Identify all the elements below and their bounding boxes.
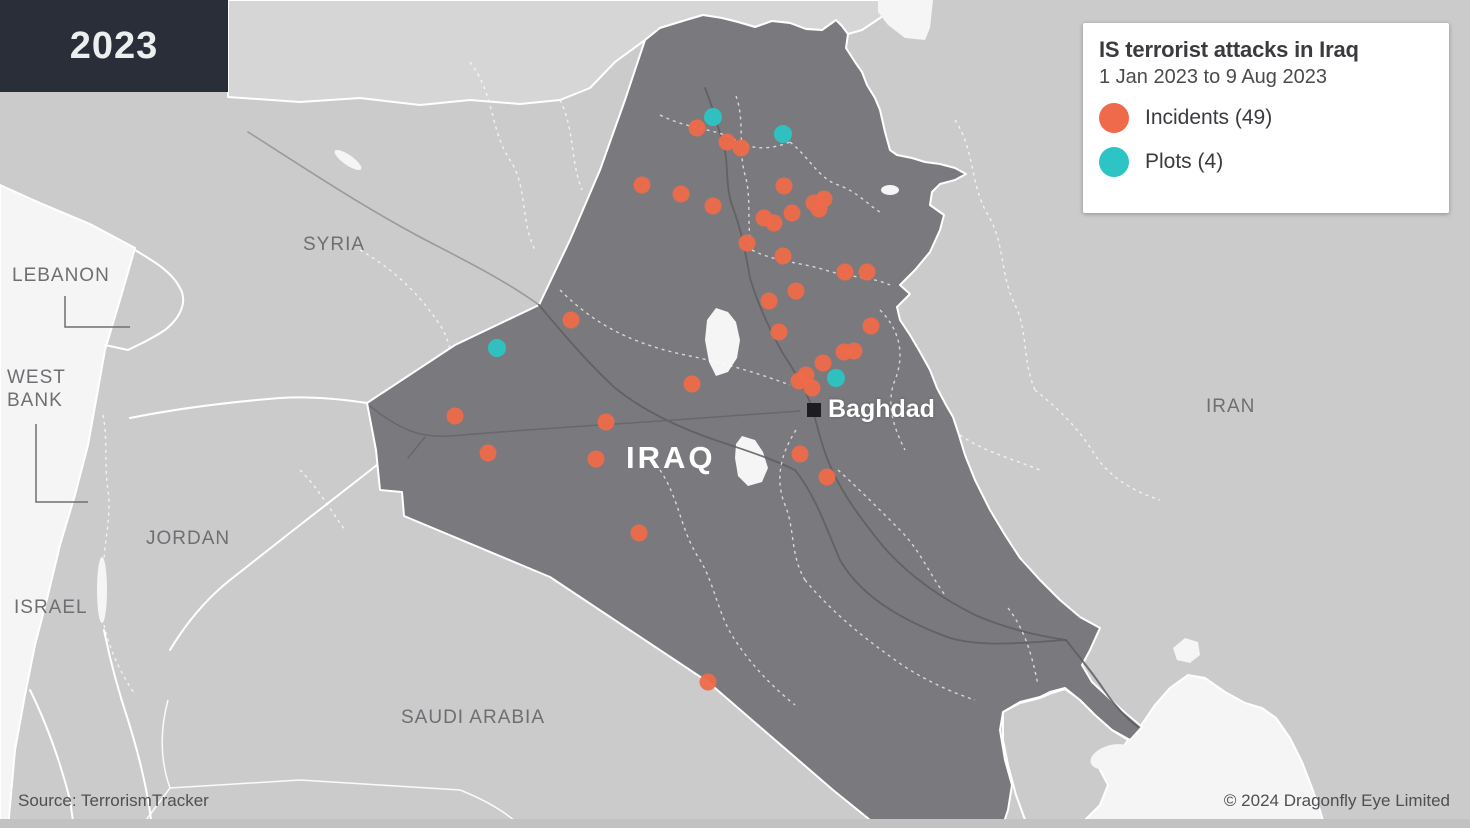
plots-label: Plots (4) bbox=[1145, 150, 1223, 174]
plot-dot bbox=[704, 108, 722, 126]
incident-dot bbox=[846, 343, 863, 360]
label-lebanon: LEBANON bbox=[12, 264, 110, 287]
incident-dot bbox=[859, 264, 876, 281]
label-saudi-arabia: SAUDI ARABIA bbox=[401, 706, 545, 729]
label-iran: IRAN bbox=[1206, 395, 1255, 418]
incident-dot bbox=[733, 140, 750, 157]
incident-dot bbox=[771, 324, 788, 341]
incidents-label: Incidents (49) bbox=[1145, 106, 1272, 130]
label-west-bank: WEST BANK bbox=[7, 366, 66, 412]
label-jordan: JORDAN bbox=[146, 527, 230, 550]
incident-dot bbox=[447, 408, 464, 425]
incident-dot bbox=[837, 264, 854, 281]
label-syria: SYRIA bbox=[303, 233, 365, 256]
incident-dot bbox=[791, 373, 808, 390]
baghdad-marker bbox=[807, 403, 821, 417]
incident-dot bbox=[631, 525, 648, 542]
plot-dot bbox=[827, 369, 845, 387]
incident-dot bbox=[811, 201, 828, 218]
label-israel: ISRAEL bbox=[14, 596, 88, 619]
incident-dot bbox=[598, 414, 615, 431]
legend-card: IS terrorist attacks in Iraq 1 Jan 2023 … bbox=[1083, 23, 1449, 213]
incident-dot bbox=[705, 198, 722, 215]
incident-dot bbox=[480, 445, 497, 462]
incident-dot bbox=[673, 186, 690, 203]
year-badge: 2023 bbox=[0, 0, 228, 92]
source-note: Source: TerrorismTracker bbox=[18, 791, 209, 811]
incident-dot bbox=[761, 293, 778, 310]
incident-dot bbox=[775, 248, 792, 265]
plots-swatch bbox=[1099, 147, 1129, 177]
legend-item-plots: Plots (4) bbox=[1099, 147, 1433, 177]
year-badge-text: 2023 bbox=[70, 25, 159, 68]
incident-dot bbox=[784, 205, 801, 222]
incident-dot bbox=[634, 177, 651, 194]
label-iraq: IRAQ bbox=[626, 440, 716, 476]
incidents-swatch bbox=[1099, 103, 1129, 133]
incident-dot bbox=[776, 178, 793, 195]
legend-item-incidents: Incidents (49) bbox=[1099, 103, 1433, 133]
incident-dot bbox=[815, 355, 832, 372]
incident-dot bbox=[819, 469, 836, 486]
legend-date-range: 1 Jan 2023 to 9 Aug 2023 bbox=[1099, 66, 1433, 89]
incident-dot bbox=[788, 283, 805, 300]
incident-dot bbox=[700, 674, 717, 691]
incident-dot bbox=[684, 376, 701, 393]
incident-dot bbox=[689, 120, 706, 137]
map-stage: LEBANON WEST BANK ISRAEL JORDAN SYRIA SA… bbox=[0, 0, 1470, 828]
incident-dot bbox=[588, 451, 605, 468]
incident-dot bbox=[739, 235, 756, 252]
incident-dot bbox=[766, 215, 783, 232]
incident-dot bbox=[792, 446, 809, 463]
legend-title: IS terrorist attacks in Iraq bbox=[1099, 37, 1433, 63]
bottom-bar bbox=[0, 819, 1470, 828]
copyright-note: © 2024 Dragonfly Eye Limited bbox=[1224, 791, 1450, 811]
plot-dot bbox=[488, 339, 506, 357]
plot-dot bbox=[774, 125, 792, 143]
incident-dot bbox=[863, 318, 880, 335]
incident-dot bbox=[563, 312, 580, 329]
baghdad-label: Baghdad bbox=[828, 395, 935, 424]
